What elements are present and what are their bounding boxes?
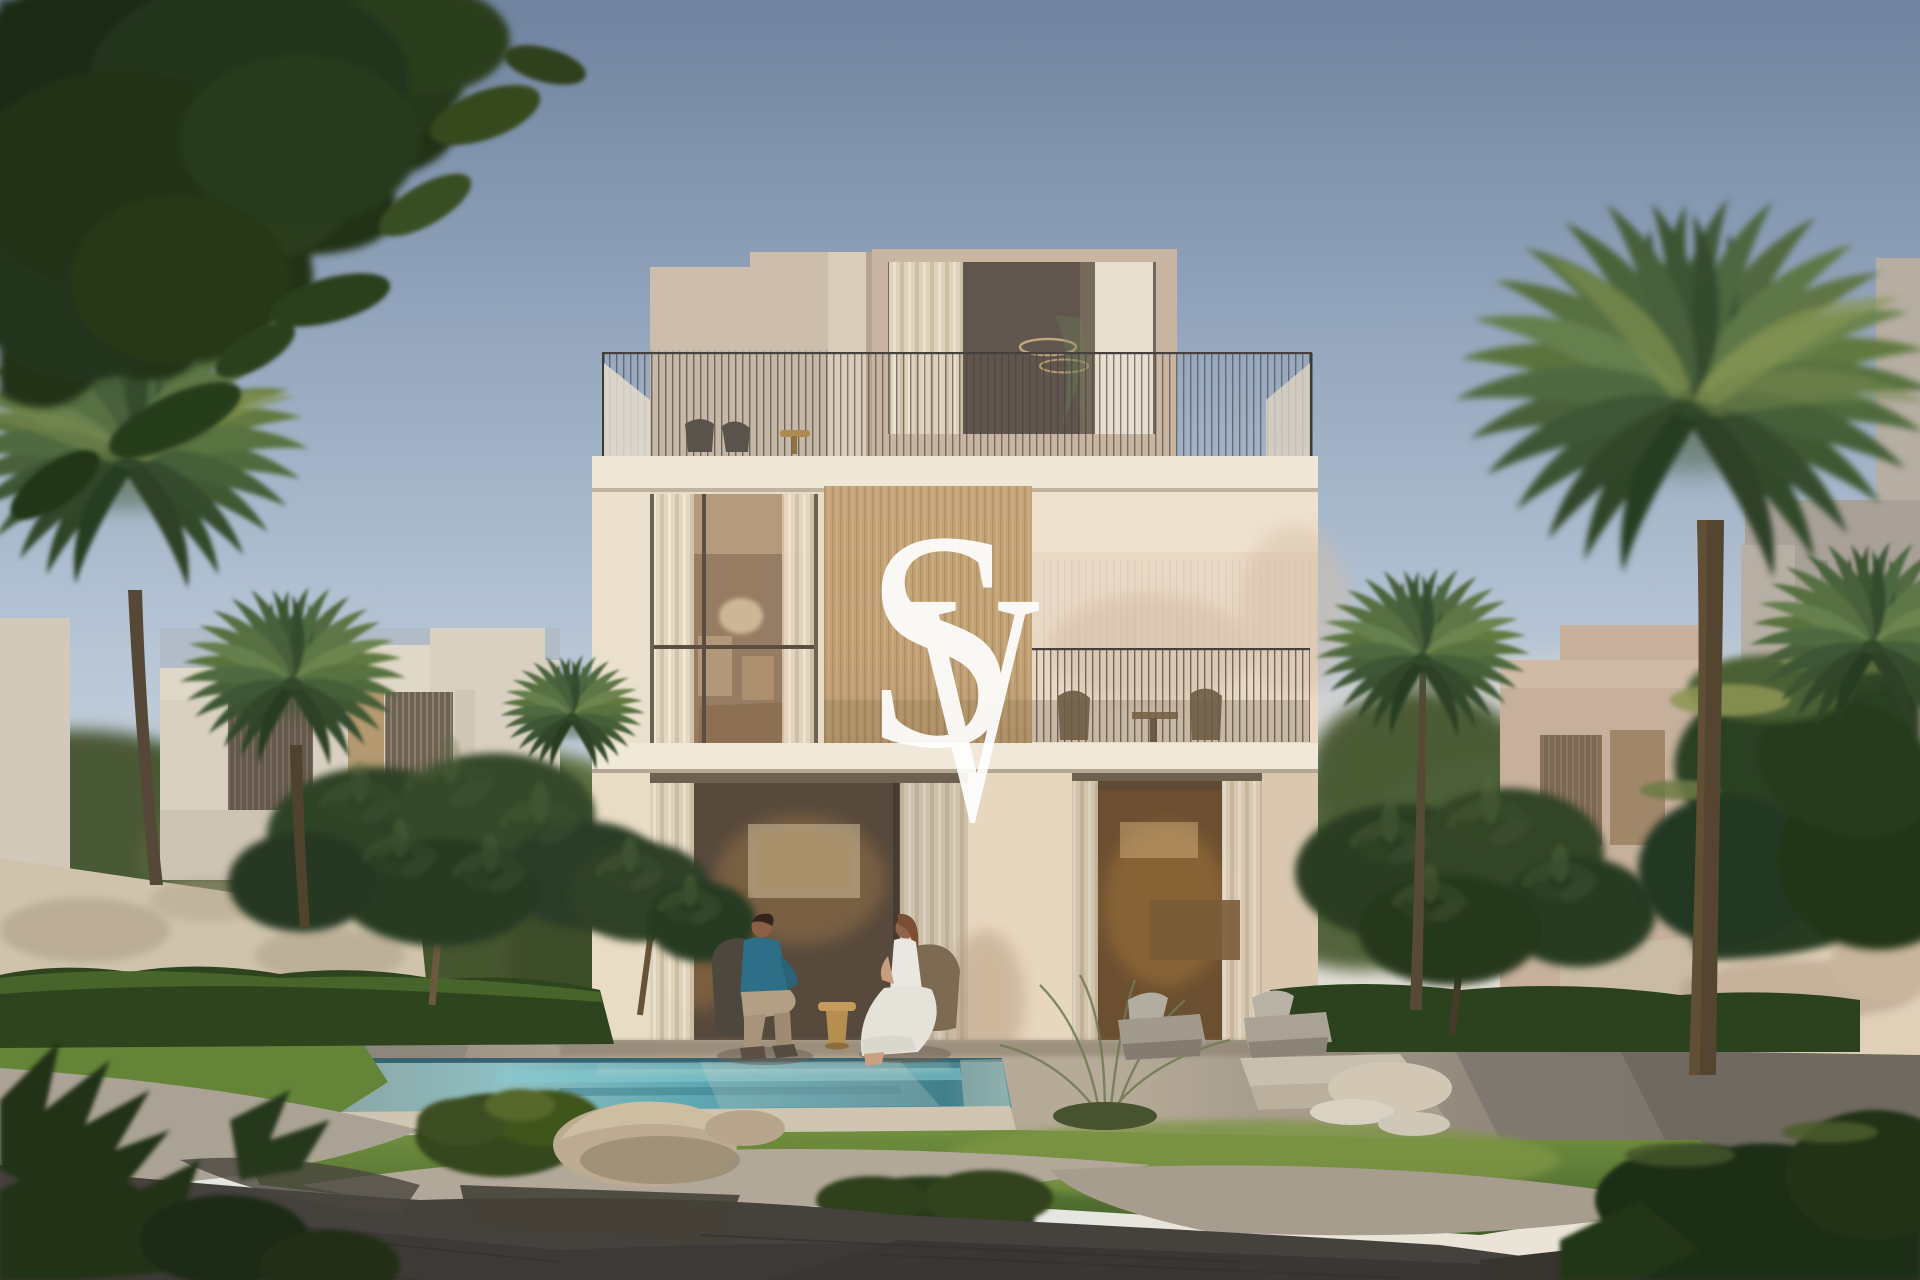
svg-text:V: V xyxy=(903,526,1041,891)
